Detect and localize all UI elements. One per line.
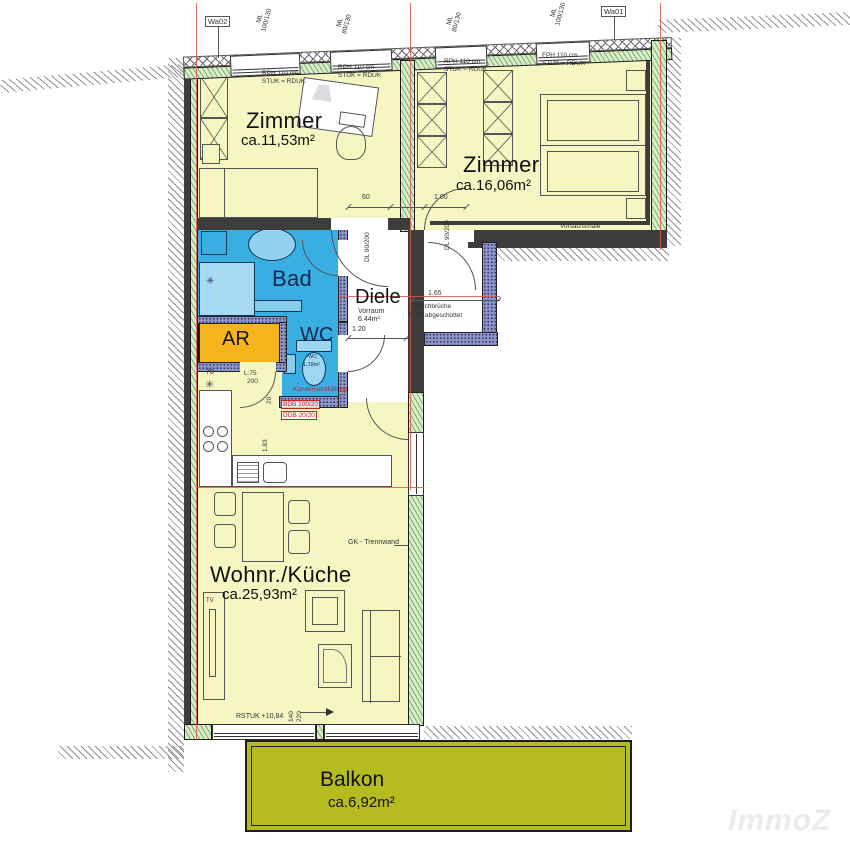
- wardrobe-icon: [417, 72, 447, 104]
- dim-60: 60: [362, 194, 370, 201]
- chair-icon: [336, 126, 366, 160]
- ceiling-note-line2: STUK = RDUK: [444, 66, 487, 73]
- red-guide-vertical: [410, 3, 411, 490]
- watermark: ImmoZ: [728, 804, 831, 838]
- dim-120: 1.20: [352, 326, 366, 333]
- dimension-line: [348, 338, 408, 339]
- ceiling-note-line1: RPH 110 cm: [262, 70, 298, 77]
- neighbour-wall-hatch-z2-bottom: [497, 248, 669, 261]
- sink-basin-icon: [263, 462, 287, 483]
- room-label-wc: WC: [300, 324, 333, 347]
- wardrobe-icon: [483, 102, 513, 134]
- chair-icon: [288, 530, 310, 554]
- dim-200: 200: [247, 378, 258, 386]
- dim-140: 140: [288, 711, 296, 722]
- dimension-line: [412, 300, 500, 301]
- note-durchbrueche: Durchbrüche: [414, 303, 451, 311]
- window-sill: [326, 733, 418, 737]
- ceiling-note: RPH 110 cmSTUK = RDUK: [262, 70, 305, 86]
- window-size-label: ML100/130: [253, 6, 274, 33]
- mattress-icon: [547, 151, 639, 192]
- bed-icon: [199, 168, 318, 218]
- side-table-icon: [318, 644, 352, 688]
- wardrobe-icon: [417, 136, 447, 168]
- wall-right-green: [651, 40, 667, 240]
- wall-niche-bottom: [424, 332, 498, 346]
- note-gk-trennwand: GK - Trennwand: [348, 539, 399, 546]
- ceiling-note: FPH 110 cmSTUK = RDUK: [542, 52, 585, 68]
- tv-cabinet-icon: [203, 592, 225, 700]
- neighbour-wall-hatch-right: [667, 38, 681, 246]
- dim-door-z2: DL 90/200: [444, 220, 452, 250]
- neighbour-wall-hatch-topright: [658, 12, 850, 33]
- door-opening-z1: [331, 218, 388, 230]
- nightstand-icon: [626, 198, 646, 219]
- wall-niche-right: [482, 242, 497, 334]
- chair-icon: [214, 524, 236, 548]
- note-rstuk: RSTUK +10,84: [236, 713, 283, 720]
- chair-icon: [214, 492, 236, 516]
- wall-living-bottom: [184, 724, 212, 740]
- wall-tag-label: Wa01: [604, 7, 623, 16]
- double-bed-icon: [540, 94, 646, 196]
- floor-plan: ✳: [0, 0, 850, 850]
- room-area-zimmer2: ca.16,06m²: [456, 177, 531, 194]
- wall-tag-wa02: Wa02: [205, 16, 230, 27]
- sofa-cushion-line: [370, 656, 401, 657]
- gk-leader-line: [394, 545, 408, 546]
- room-label-balkon: Balkon: [320, 768, 384, 792]
- lamp-symbol-icon: ✳: [205, 378, 214, 391]
- bath-shelf-icon: [254, 300, 302, 312]
- armchair-icon: [305, 590, 345, 632]
- room-label-bad: Bad: [272, 266, 312, 292]
- window-glass-line: [416, 434, 417, 494]
- wc-tiny-area: 1,19m²: [303, 362, 320, 368]
- wardrobe-icon: [483, 70, 513, 102]
- window-balcony: [212, 724, 316, 740]
- wall-tag-leader: [614, 17, 615, 40]
- stove-burner-icon: [217, 426, 228, 437]
- room-label-ar: AR: [222, 328, 250, 351]
- sofa-back-line: [370, 611, 371, 703]
- room-area-diele: 6.44m²: [358, 316, 380, 323]
- exit-arrow-head: [326, 708, 334, 716]
- ceiling-note-line1: RPH 110 cm: [338, 64, 374, 71]
- window-size: 100/130: [261, 8, 274, 33]
- sofa-icon: [362, 610, 400, 702]
- window-size-label: ML100/130: [547, 0, 568, 27]
- dim-100: 1.00: [434, 194, 448, 201]
- dim-door-z1: DL 90/200: [364, 232, 372, 262]
- red-guide-vertical: [196, 3, 197, 740]
- window-size-label: ML80/130: [444, 10, 464, 33]
- ceiling-note-line2: STUK = RDUK: [262, 78, 305, 85]
- window-size: 100/130: [555, 2, 568, 27]
- note-ddb: DDB 20/20: [281, 411, 317, 420]
- note-bdb: BDB 100/20: [281, 400, 320, 409]
- ceiling-note-line1: RPH 110 cm: [444, 58, 480, 65]
- dim-183: 1.83: [262, 439, 270, 452]
- red-guide-horizontal: [196, 487, 424, 488]
- note-vent-red: Kondensentlüftung: [293, 386, 347, 394]
- neighbour-wall-hatch-left: [168, 58, 184, 772]
- shower-head-icon: ✳: [206, 276, 214, 287]
- nightstand-icon: [626, 70, 646, 91]
- wc-tiny-label: WC: [308, 354, 317, 360]
- ceiling-note-line1: FPH 110 cm: [542, 52, 578, 59]
- wall-tag-label: Wa02: [208, 17, 227, 26]
- room-sub-diele: Vorraum: [358, 308, 384, 315]
- room-area-balkon: ca.6,92m²: [328, 794, 395, 811]
- window-sill: [214, 733, 314, 737]
- note-vorsatzschale: Vorsatzschale: [560, 223, 600, 231]
- room-area-wohnkueche: ca.25,93m²: [222, 586, 297, 603]
- note-ei90: EI 90 abgeschottet: [408, 312, 462, 320]
- note-tv: TV: [206, 598, 214, 604]
- wall-living-bottom: [316, 724, 324, 740]
- dimension-line: [348, 207, 466, 208]
- stove-burner-icon: [203, 441, 214, 452]
- balcony-door: [324, 724, 420, 740]
- kitchen-counter-horizontal: [232, 455, 392, 487]
- bed-split-line: [541, 145, 647, 146]
- balcony: [245, 740, 632, 832]
- dim-165: 1.65: [428, 290, 442, 297]
- ceiling-note: RPH 110 cmSTUK = RDUK: [444, 58, 487, 74]
- wall-tag-leader: [218, 27, 219, 58]
- wardrobe-icon: [200, 76, 228, 118]
- armchair-seat: [312, 597, 338, 625]
- room-label-zimmer1: Zimmer: [246, 108, 322, 134]
- dining-table-icon: [242, 492, 284, 562]
- dim-20: 20: [266, 397, 274, 404]
- washing-machine-icon: [201, 231, 227, 255]
- room-diele-floor: [346, 368, 408, 402]
- neighbour-wall-hatch-balcony: [424, 726, 632, 739]
- dim-220: 220: [296, 711, 304, 722]
- window-size: 80/130: [341, 14, 353, 35]
- wardrobe-icon: [417, 104, 447, 136]
- dim-l75: L:75: [244, 370, 257, 378]
- ceiling-note-line2: STUK = RDUK: [338, 72, 381, 79]
- wall-tag-wa01: Wa01: [601, 6, 626, 17]
- window-size-label: ML80/130: [334, 12, 354, 35]
- neighbour-wall-hatch-topleft: [0, 64, 184, 93]
- kitchen-counter-vertical: [199, 390, 232, 487]
- nightstand-icon: [202, 144, 220, 164]
- mattress-icon: [547, 100, 639, 141]
- red-guide-vertical: [660, 3, 661, 250]
- ceiling-note: RPH 110 cmSTUK = RDUK: [338, 64, 381, 80]
- room-label-zimmer2: Zimmer: [463, 152, 539, 178]
- door-arc-wc: [348, 335, 385, 372]
- dim-70: 70: [206, 369, 214, 376]
- wall-ar-top: [197, 316, 287, 324]
- side-table-detail: [323, 649, 347, 683]
- stove-burner-icon: [203, 426, 214, 437]
- room-label-diele: Diele: [355, 286, 401, 309]
- stove-burner-icon: [217, 441, 228, 452]
- sink-drainer-icon: [237, 462, 259, 483]
- bed-pillow-line: [224, 169, 225, 219]
- room-area-zimmer1: ca.11,53m²: [241, 132, 315, 149]
- ceiling-note-line2: STUK = RDUK: [542, 60, 585, 67]
- neighbour-wall-hatch-bottomleft: [58, 746, 184, 759]
- room-label-wohnkueche: Wohnr./Küche: [210, 562, 351, 588]
- vorsatzschale-wall: [646, 46, 650, 224]
- balcony-inner-line: [251, 746, 626, 826]
- shower-icon: [199, 262, 255, 316]
- desk-lamp-icon: [312, 83, 334, 102]
- tv-screen-icon: [209, 609, 216, 677]
- washbasin-icon: [248, 228, 296, 261]
- chair-icon: [288, 500, 310, 524]
- window-size: 80/130: [451, 12, 463, 33]
